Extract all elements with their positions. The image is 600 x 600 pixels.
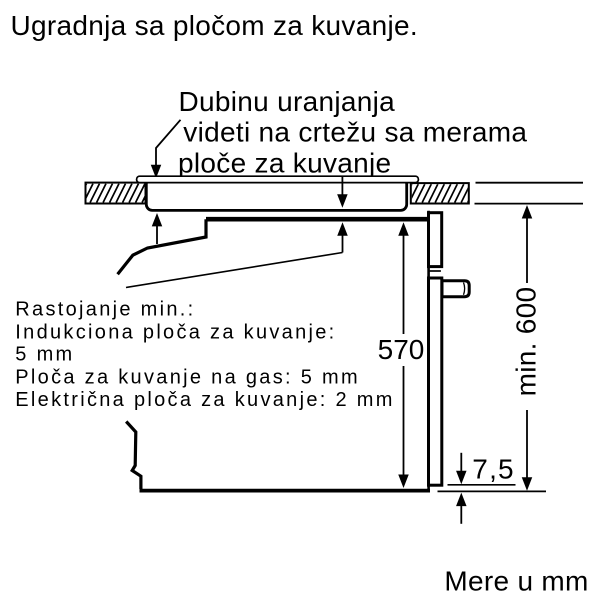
svg-text:Električna ploča za kuvanje: 2: Električna ploča za kuvanje: 2 mm <box>15 389 394 411</box>
svg-text:Mere u mm: Mere u mm <box>444 566 588 597</box>
svg-text:570: 570 <box>378 334 425 365</box>
svg-text:5 mm: 5 mm <box>15 343 74 365</box>
svg-text:Ploča za kuvanje na gas: 5 mm: Ploča za kuvanje na gas: 5 mm <box>15 367 360 389</box>
svg-text:Indukciona ploča za kuvanje:: Indukciona ploča za kuvanje: <box>15 321 336 343</box>
svg-text:Ugradnja sa pločom za kuvanje.: Ugradnja sa pločom za kuvanje. <box>11 10 418 41</box>
svg-text:7,5: 7,5 <box>472 454 515 485</box>
svg-text:videti na crtežu sa merama: videti na crtežu sa merama <box>183 117 527 148</box>
svg-text:Dubinu uranjanja: Dubinu uranjanja <box>179 86 396 117</box>
svg-text:Rastojanje min.:: Rastojanje min.: <box>15 299 195 321</box>
svg-text:min. 600: min. 600 <box>511 287 542 397</box>
svg-text:ploče za kuvanje: ploče za kuvanje <box>178 148 391 179</box>
